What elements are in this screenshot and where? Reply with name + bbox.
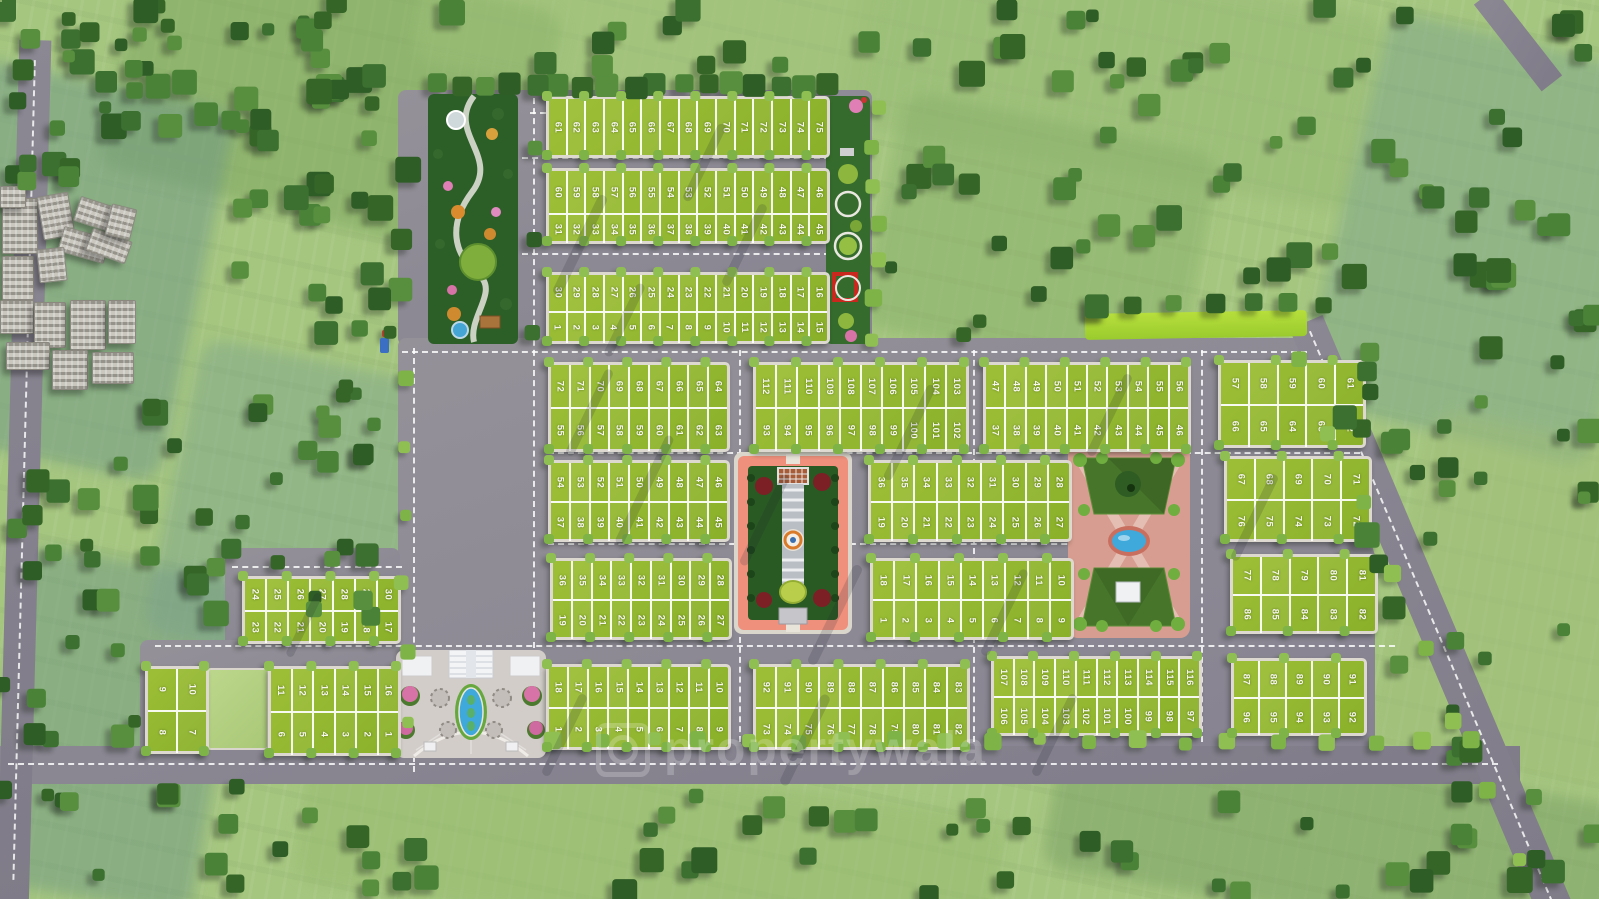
plot: 19 [752, 275, 771, 311]
plot: 115 [1158, 659, 1179, 696]
plot: 70 [589, 365, 609, 407]
plot: 27 [603, 275, 622, 311]
plot: 97 [839, 409, 860, 451]
plot-number: 8 [1033, 617, 1044, 623]
plot-block-a: 727170696867666564555657585960616263 [548, 362, 730, 452]
plot: 51 [715, 171, 734, 213]
plot: 59 [628, 409, 648, 451]
plot-block-h: 77787980818685848382 [1230, 554, 1378, 634]
plaza-circle [447, 111, 465, 129]
plot-number: 8 [683, 325, 694, 331]
plot-number: 14 [966, 574, 977, 586]
plot-number: 88 [1267, 673, 1278, 685]
plot-number: 27 [1053, 516, 1064, 528]
plot-row: 37383940414243444546 [986, 407, 1188, 451]
plot: 89 [818, 667, 839, 707]
plot-number: 96 [824, 424, 835, 436]
plot-number: 17 [382, 622, 393, 634]
plot-number: 57 [1229, 378, 1240, 390]
plot-number: 70 [1321, 473, 1332, 485]
plot-number: 20 [316, 622, 327, 634]
plot: 48 [771, 171, 790, 213]
plot-number: 57 [594, 424, 605, 436]
plot-row: 6768697071 [1227, 459, 1369, 499]
plot-number: 81 [1356, 570, 1367, 582]
plot: 15 [808, 313, 827, 343]
plot: 50 [734, 171, 753, 213]
plot-row: 654321 [271, 711, 398, 755]
plot-number: 22 [616, 614, 627, 626]
plot: 20 [571, 601, 591, 639]
plot: 65 [1248, 406, 1277, 447]
plot: 70 [715, 99, 734, 155]
plot: 53 [569, 463, 589, 501]
plot: 92 [1338, 699, 1364, 735]
plot: 31 [549, 215, 566, 243]
plot: 83 [1317, 596, 1346, 633]
plot-number: 12 [757, 322, 768, 334]
plot: 14 [627, 667, 647, 707]
plot: 103 [945, 365, 966, 407]
plot: 64 [1277, 406, 1306, 447]
plot: 30 [549, 275, 566, 311]
plot-number: 83 [1327, 609, 1338, 621]
plot: 100 [1116, 698, 1137, 735]
plot: 1 [873, 601, 893, 639]
road-marking [232, 566, 402, 568]
plot-number: 83 [952, 681, 963, 693]
plot: 28 [709, 561, 729, 599]
plot: 7 [668, 709, 688, 749]
plot-number: 34 [920, 476, 931, 488]
plot-number: 48 [673, 476, 684, 488]
plot: 38 [1004, 409, 1024, 451]
plot-number: 11 [1033, 574, 1044, 585]
plot: 116 [1178, 659, 1199, 696]
plot: 7 [176, 712, 206, 753]
plot: 40 [715, 215, 734, 243]
plot-block-bl1: 2425262728293023222120191817 [242, 576, 401, 644]
plot-number: 8 [693, 726, 704, 732]
plot: 1 [549, 313, 566, 343]
plot-number: 12 [297, 684, 308, 696]
plot-number: 74 [1292, 515, 1303, 527]
plot-row: 910 [148, 669, 206, 710]
plot: 95 [796, 409, 817, 451]
plot-number: 45 [1153, 424, 1164, 436]
plot: 63 [707, 409, 727, 451]
plot-number: 2 [900, 617, 911, 623]
plot-number: 35 [576, 574, 587, 586]
plot-number: 88 [845, 681, 856, 693]
plot: 4 [312, 713, 334, 755]
plot: 33 [584, 215, 603, 243]
road-marking [973, 350, 975, 742]
plot-block-t1: 616263646566676869707172737475 [546, 96, 830, 158]
plot-number: 37 [664, 223, 675, 235]
plot-block-j: 9291908988878685848373747576777879808182 [753, 664, 970, 750]
plot: 29 [689, 561, 709, 599]
plot-number: 10 [1055, 574, 1066, 586]
plot-number: 65 [1258, 421, 1269, 433]
plot: 66 [668, 365, 688, 407]
plot-number: 24 [250, 589, 261, 601]
plot-number: 4 [608, 325, 619, 331]
plot-number: 28 [1053, 476, 1064, 488]
plot: 13 [982, 561, 1004, 599]
plot-number: 10 [713, 681, 724, 693]
plot: 104 [1033, 698, 1054, 735]
plot-number: 35 [627, 223, 638, 235]
plot-number: 53 [1112, 380, 1123, 392]
plot: 85 [903, 667, 924, 707]
plot: 48 [1004, 365, 1024, 407]
plot: 103 [1054, 698, 1075, 735]
plot-number: 18 [878, 574, 889, 586]
trellis [778, 468, 808, 484]
plot: 18 [771, 275, 790, 311]
plot-number: 37 [554, 516, 565, 528]
plot: 91 [1338, 661, 1364, 697]
plot: 29 [1025, 463, 1047, 501]
plot-number: 16 [813, 287, 824, 299]
plot: 52 [1086, 365, 1106, 407]
plot: 11 [271, 669, 291, 711]
plot-number: 64 [1286, 421, 1297, 433]
building [70, 300, 106, 350]
plot-number: 1 [553, 726, 564, 732]
plot-number: 39 [594, 516, 605, 528]
plot-number: 4 [613, 726, 624, 732]
plot: 2 [893, 601, 915, 639]
plot: 45 [1147, 409, 1167, 451]
plot-number: 6 [989, 617, 1000, 623]
plot: 86 [882, 667, 903, 707]
plot-number: 56 [574, 424, 585, 436]
plot: 16 [587, 667, 607, 707]
plot: 27 [709, 601, 729, 639]
plot-row: 7675747372 [1227, 499, 1369, 541]
plot-row: 181716151413121110 [549, 667, 728, 707]
plot: 9 [148, 669, 176, 710]
plot-number: 36 [645, 223, 656, 235]
plot: 16 [377, 669, 399, 711]
plot-number: 19 [876, 516, 887, 528]
building [52, 350, 88, 390]
plot: 73 [1311, 501, 1340, 541]
plot: 60 [648, 409, 668, 451]
plot-number: 34 [596, 574, 607, 586]
plot-number: 39 [701, 223, 712, 235]
plot-number: 20 [739, 287, 750, 299]
plot-number: 75 [1264, 515, 1275, 527]
plot: 21 [715, 275, 734, 311]
plot-number: 84 [1298, 609, 1309, 621]
plot: 25 [640, 275, 659, 311]
plot-number: 22 [942, 516, 953, 528]
plot: 78 [860, 709, 881, 749]
plot: 81 [1346, 557, 1375, 594]
plot: 21 [287, 612, 309, 643]
plot-number: 66 [1229, 421, 1240, 433]
plot: 37 [551, 503, 569, 541]
plot: 111 [775, 365, 796, 407]
plot-number: 28 [589, 287, 600, 299]
plot: 17 [790, 275, 809, 311]
plot: 58 [584, 171, 603, 213]
plot: 86 [1233, 596, 1260, 633]
plot-number: 33 [942, 476, 953, 488]
plot-number: 98 [1163, 711, 1174, 723]
plot: 49 [1025, 365, 1045, 407]
plot: 44 [1127, 409, 1147, 451]
road-marking [155, 645, 1395, 647]
plot: 38 [569, 503, 589, 541]
plot-number: 49 [1031, 380, 1042, 392]
plot: 23 [958, 503, 980, 541]
plot-number: 11 [739, 322, 750, 333]
plot-number: 84 [931, 681, 942, 693]
plot: 58 [1248, 363, 1277, 404]
plot: 18 [354, 612, 376, 643]
plot-block-f1: 363534333231302928192021222324252627 [868, 460, 1072, 542]
plot: 66 [640, 99, 659, 155]
plot-number: 6 [275, 731, 286, 737]
plot: 20 [734, 275, 753, 311]
main-entrance-plaza [396, 650, 546, 758]
plot-number: 31 [655, 574, 666, 586]
plot-number: 75 [803, 723, 814, 735]
plot: 22 [696, 275, 715, 311]
plot-number: 73 [776, 121, 787, 133]
plot: 89 [1285, 661, 1311, 697]
plot-number: 108 [1019, 669, 1030, 686]
plot-number: 46 [713, 476, 724, 488]
plot-number: 48 [1010, 380, 1021, 392]
plot: 47 [986, 365, 1004, 407]
plot: 59 [566, 171, 585, 213]
side-gate [380, 338, 389, 353]
plot-number: 50 [1051, 380, 1062, 392]
plot: 102 [945, 409, 966, 451]
plot-number: 23 [636, 614, 647, 626]
plot: 79 [1289, 557, 1318, 594]
plot: 4 [938, 601, 960, 639]
plot-number: 15 [944, 574, 955, 586]
plot-number: 28 [338, 589, 349, 601]
plot: 7 [659, 313, 678, 343]
plot: 1 [549, 709, 567, 749]
plot-row: 181716151413121110 [873, 561, 1071, 599]
plot-row: 545352515049484746 [551, 463, 727, 501]
plot-number: 87 [1241, 673, 1252, 685]
building [0, 300, 34, 334]
site-plan: 6162636465666768697071727374756059585756… [0, 0, 1599, 899]
plot: 39 [1025, 409, 1045, 451]
plot-number: 34 [608, 223, 619, 235]
plot: 3 [584, 313, 603, 343]
plot-number: 30 [552, 287, 563, 299]
plot: 55 [551, 409, 569, 451]
plot: 16 [915, 561, 937, 599]
plot-number: 55 [645, 186, 656, 198]
plot-number: 68 [634, 380, 645, 392]
garden-strip-east [826, 96, 870, 344]
plot: 96 [818, 409, 839, 451]
plot: 112 [1096, 659, 1117, 696]
plot: 95 [1258, 699, 1284, 735]
plot-row: 23222120191817 [245, 610, 398, 643]
plot-number: 66 [645, 121, 656, 133]
plot: 106 [994, 698, 1013, 735]
plot-number: 111 [1081, 669, 1092, 685]
plot-number: 48 [776, 186, 787, 198]
plot: 105 [1013, 698, 1034, 735]
plot: 90 [797, 667, 818, 707]
plot-number: 15 [361, 684, 372, 696]
plot: 94 [1285, 699, 1311, 735]
plot: 1 [377, 713, 399, 755]
plot-number: 71 [1350, 473, 1361, 485]
plot: 75 [808, 99, 827, 155]
plot-number: 8 [156, 730, 167, 736]
plot-number: 97 [1184, 711, 1195, 723]
plot-number: 51 [1071, 380, 1082, 392]
plot: 29 [566, 275, 585, 311]
plot-number: 61 [552, 121, 563, 133]
plot-number: 68 [1264, 473, 1275, 485]
plot: 64 [707, 365, 727, 407]
plot-number: 104 [930, 377, 941, 394]
plot-row: 9695949392 [1234, 697, 1364, 735]
plot: 67 [648, 365, 668, 407]
plot: 77 [839, 709, 860, 749]
plot-row: 616263646566676869707172737475 [549, 99, 827, 155]
plot: 3 [334, 713, 356, 755]
maroon-tree [756, 592, 772, 608]
plot-number: 50 [634, 476, 645, 488]
plot-number: 19 [556, 614, 567, 626]
plot: 19 [332, 612, 354, 643]
plot: 106 [881, 365, 902, 407]
plot: 34 [913, 463, 935, 501]
plot: 68 [628, 365, 648, 407]
plot: 51 [608, 463, 628, 501]
plot-number: 40 [614, 516, 625, 528]
plot-number: 70 [594, 380, 605, 392]
plot: 46 [808, 171, 827, 213]
plot-block-l: 87888990919695949392 [1231, 658, 1367, 736]
plot-number: 45 [713, 516, 724, 528]
plot-number: 3 [340, 731, 351, 737]
plot: 14 [790, 313, 809, 343]
plot-number: 78 [867, 723, 878, 735]
plot: 6 [982, 601, 1004, 639]
plot-row: 8788899091 [1234, 661, 1364, 697]
plot-number: 19 [757, 287, 768, 299]
plot-number: 73 [760, 723, 771, 735]
plot: 91 [775, 667, 796, 707]
plot-number: 100 [909, 421, 920, 438]
plot-number: 36 [556, 574, 567, 586]
plot-number: 64 [608, 121, 619, 133]
plot: 107 [994, 659, 1013, 696]
plot-number: 51 [614, 476, 625, 488]
plot: 75 [1254, 501, 1283, 541]
plot-number: 24 [655, 614, 666, 626]
plot-number: 110 [1060, 669, 1071, 686]
plot: 52 [589, 463, 609, 501]
plot-number: 29 [1031, 476, 1042, 488]
plot-number: 82 [1356, 609, 1367, 621]
plot: 11 [734, 313, 753, 343]
plot-number: 41 [634, 516, 645, 528]
plot: 24 [980, 503, 1002, 541]
plot: 4 [607, 709, 627, 749]
plot-number: 43 [776, 223, 787, 235]
plot-number: 26 [627, 287, 638, 299]
plot: 74 [1283, 501, 1312, 541]
plot-number: 47 [693, 476, 704, 488]
plot-block-d: 57585960616665646362 [1218, 360, 1366, 448]
plot: 80 [903, 709, 924, 749]
plot: 42 [752, 215, 771, 243]
plot: 5 [622, 313, 641, 343]
plot-number: 89 [1294, 673, 1305, 685]
plot-number: 7 [186, 730, 197, 736]
plot-number: 4 [318, 731, 329, 737]
plot: 25 [265, 579, 287, 610]
plot-number: 54 [554, 476, 565, 488]
flower-tree [402, 686, 418, 702]
plot: 67 [659, 99, 678, 155]
plot-number: 111 [781, 378, 792, 394]
plot-number: 116 [1184, 669, 1195, 686]
plot-number: 89 [824, 681, 835, 693]
plot-number: 32 [964, 476, 975, 488]
plot: 71 [569, 365, 589, 407]
plot-number: 27 [608, 287, 619, 299]
plot-number: 90 [803, 681, 814, 693]
plot: 22 [936, 503, 958, 541]
plot-number: 30 [1009, 476, 1020, 488]
plot-number: 17 [573, 681, 584, 693]
plot-number: 33 [616, 574, 627, 586]
plot-number: 5 [633, 726, 644, 732]
plot: 96 [1234, 699, 1258, 735]
plot: 88 [1258, 661, 1284, 697]
plot-number: 38 [683, 223, 694, 235]
tent [451, 205, 465, 219]
plot: 43 [1106, 409, 1126, 451]
plot: 28 [584, 275, 603, 311]
plot: 99 [1137, 698, 1158, 735]
plot: 57 [589, 409, 609, 451]
plot: 3 [587, 709, 607, 749]
plot-block-e2: 363534333231302928192021222324252627 [550, 558, 732, 640]
plot-number: 90 [1320, 673, 1331, 685]
plot: 101 [1096, 698, 1117, 735]
plot: 33 [610, 561, 630, 599]
plot-number: 29 [695, 574, 706, 586]
plot-number: 92 [1346, 711, 1357, 723]
plot-number: 3 [589, 325, 600, 331]
building [92, 352, 134, 384]
plot: 63 [1305, 406, 1334, 447]
plot-number: 20 [576, 614, 587, 626]
plot-number: 72 [757, 121, 768, 133]
plot: 13 [312, 669, 334, 711]
